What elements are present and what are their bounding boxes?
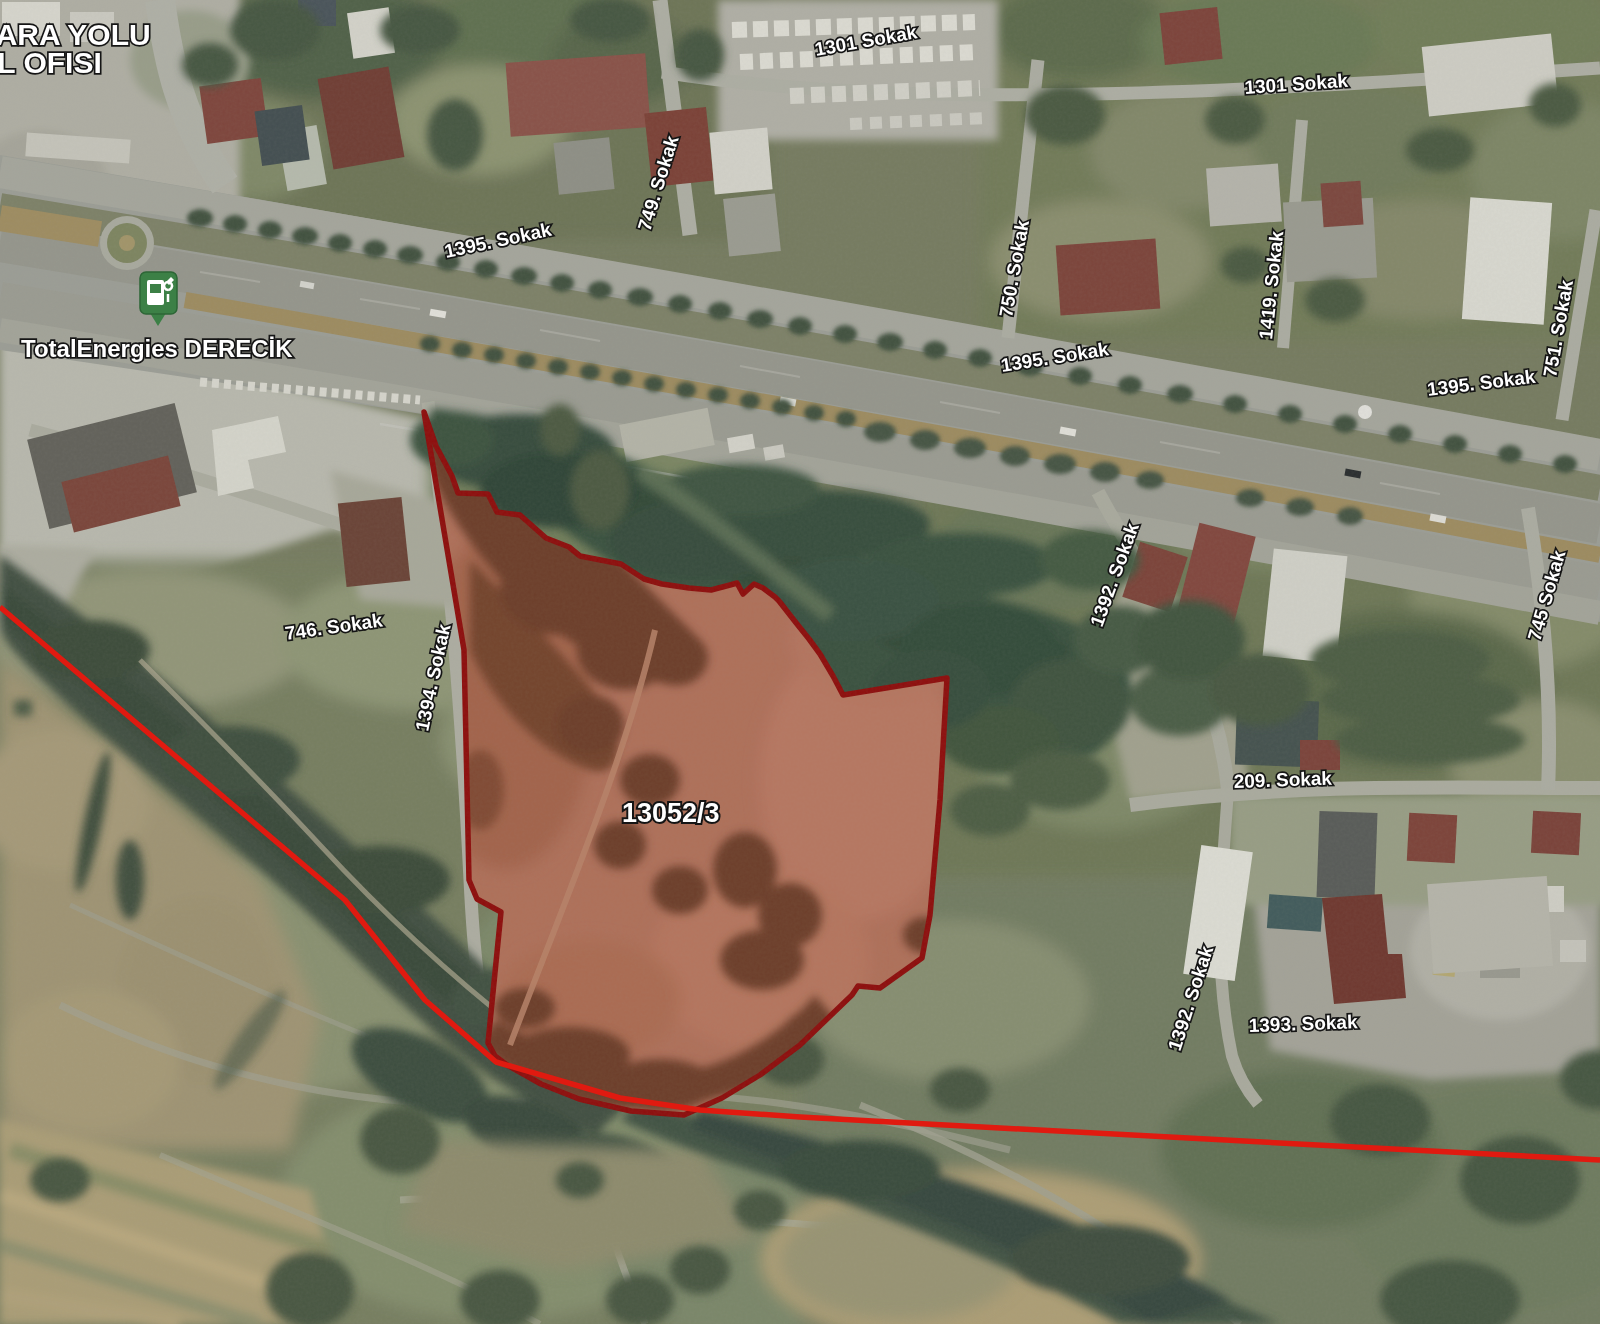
svg-text:OL OFISI: OL OFISI bbox=[0, 46, 102, 79]
svg-text:TotalEnergies DERECİK: TotalEnergies DERECİK bbox=[21, 335, 293, 362]
svg-text:209. Sokak: 209. Sokak bbox=[1233, 768, 1332, 792]
svg-text:1393. Sokak: 1393. Sokak bbox=[1248, 1011, 1358, 1036]
svg-text:13052/3: 13052/3 bbox=[622, 798, 720, 828]
